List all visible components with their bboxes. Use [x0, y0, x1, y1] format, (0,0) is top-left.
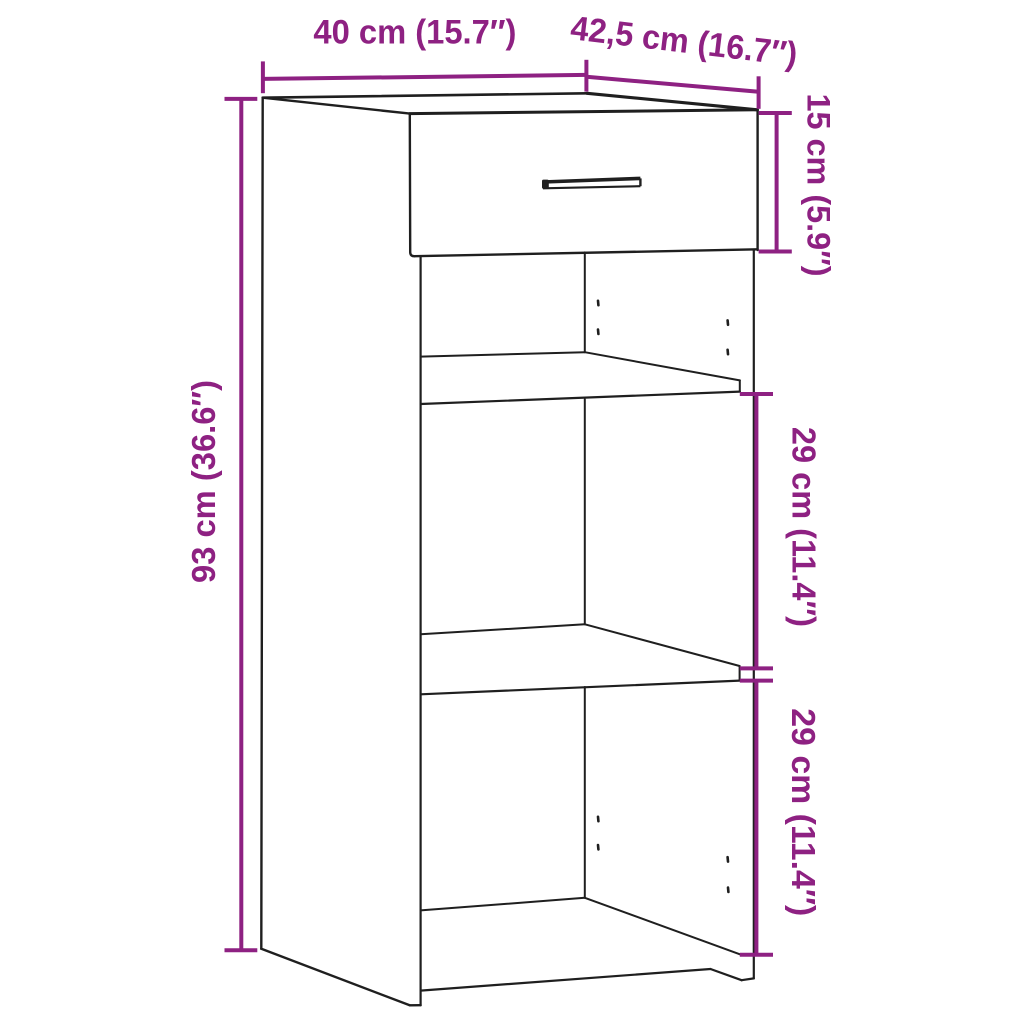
svg-text:29 cm (11.4″): 29 cm (11.4″) — [786, 427, 823, 627]
svg-text:29 cm (11.4″): 29 cm (11.4″) — [785, 708, 822, 916]
svg-text:40 cm (15.7″): 40 cm (15.7″) — [313, 14, 516, 52]
svg-text:93 cm (36.6″): 93 cm (36.6″) — [185, 380, 222, 583]
svg-text:15 cm (5.9″): 15 cm (5.9″) — [801, 94, 837, 277]
